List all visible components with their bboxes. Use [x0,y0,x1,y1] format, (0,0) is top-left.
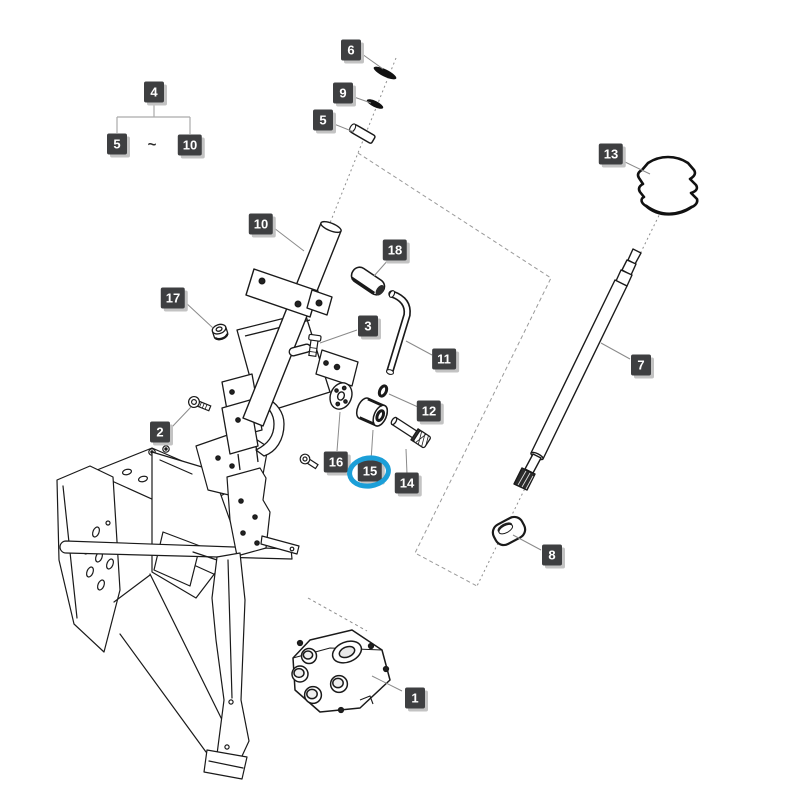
part-label-14[interactable]: 14 [395,473,419,494]
part-label-11[interactable]: 11 [432,349,456,370]
part-2-bolt [187,395,212,413]
part-17-nut [211,323,229,342]
exploded-diagram [0,0,800,800]
part-label-5[interactable]: 5 [313,110,333,131]
part-15-bushing [354,396,390,428]
diagram-canvas: 123567891011121314151617184510~ [0,0,800,800]
part-label-12[interactable]: 12 [417,401,441,422]
group-bracket [117,102,190,134]
part-9-ring [366,97,385,110]
part-label-4-group[interactable]: 4 [144,82,164,103]
frame-bracket [57,430,299,779]
part-label-16[interactable]: 16 [324,452,348,473]
part-label-17[interactable]: 17 [161,288,185,309]
part-13-boot [638,157,697,214]
part-8-collar [490,514,529,548]
part-6-snap-ring [372,64,398,81]
part-1-steering-valve [292,630,390,712]
part-7-steering-shaft [514,249,641,490]
part-11-lever-rod [386,290,407,375]
part-18-grip [349,264,388,298]
part-label-6[interactable]: 6 [341,40,361,61]
part-label-7[interactable]: 7 [631,355,651,376]
part-12-oring [378,385,388,397]
part-label-18[interactable]: 18 [383,240,407,261]
part-label-5-range-start[interactable]: 5 [107,134,127,155]
valve-axis-line [308,598,367,631]
part-label-9[interactable]: 9 [333,83,353,104]
range-separator: ~ [148,138,157,153]
part-5-pin [348,123,375,144]
part-label-2[interactable]: 2 [150,422,170,443]
small-bolt [298,452,319,470]
part-label-13[interactable]: 13 [599,144,623,165]
part-label-8[interactable]: 8 [542,545,562,566]
part-label-10-range-end[interactable]: 10 [178,135,202,156]
part-label-10[interactable]: 10 [249,214,273,235]
part-label-3[interactable]: 3 [358,316,378,337]
part-label-1[interactable]: 1 [405,688,425,709]
